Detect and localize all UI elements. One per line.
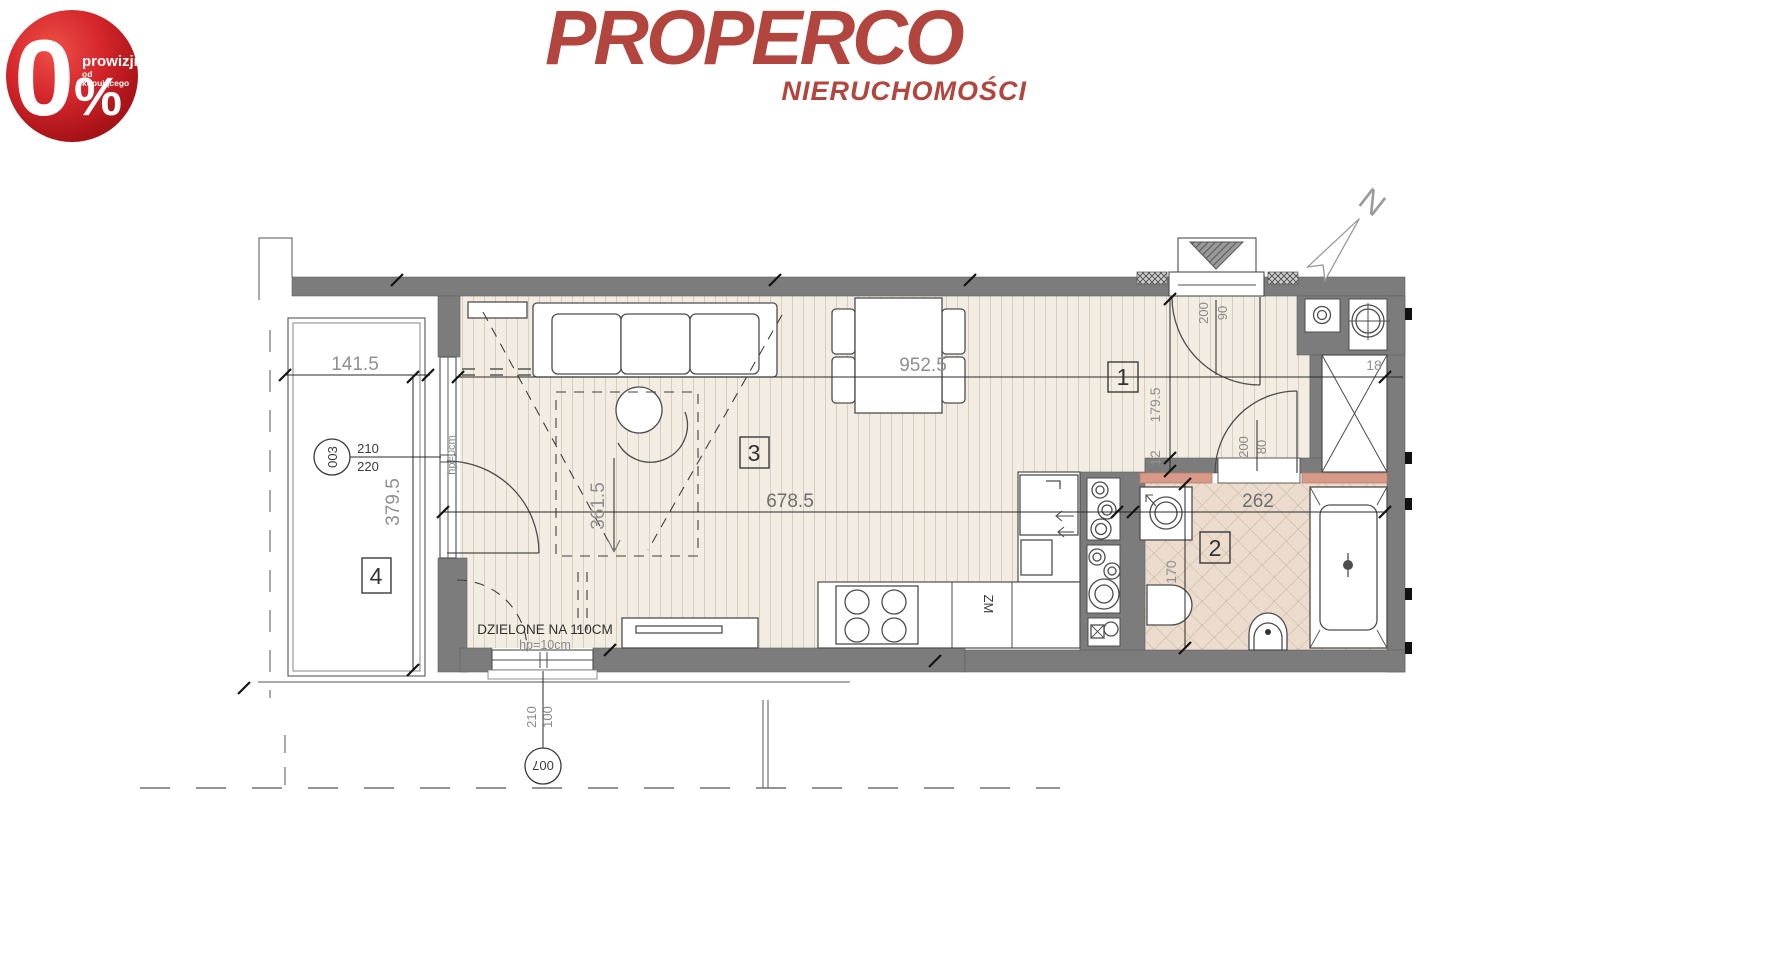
note-divided: DZIELONE NA 110CM bbox=[477, 622, 613, 637]
bath-door-height: 200 bbox=[1236, 436, 1251, 458]
armchair-seat bbox=[616, 387, 662, 433]
dim-179: 179.5 bbox=[1147, 387, 1163, 422]
dim-952: 952.5 bbox=[899, 355, 947, 376]
window-height-label: 210 bbox=[524, 706, 539, 728]
toilet-flush-dot bbox=[1265, 629, 1271, 635]
wall-left-upper bbox=[438, 296, 460, 357]
bathtub bbox=[1310, 487, 1387, 648]
dim-361: 361.5 bbox=[588, 482, 609, 530]
party-wall-hatch-left bbox=[1137, 272, 1167, 284]
niche-box-1 bbox=[1305, 299, 1340, 332]
dim-12: 12 bbox=[1147, 450, 1163, 466]
entry-door-height: 200 bbox=[1196, 302, 1211, 324]
wall-bottom-a bbox=[460, 648, 492, 672]
ref-003-label: 003 bbox=[325, 446, 340, 468]
room1-number: 1 bbox=[1117, 364, 1130, 390]
section-marks bbox=[1405, 308, 1412, 654]
sofa-cushion-3 bbox=[690, 314, 759, 374]
dishwasher-label: ZM bbox=[981, 595, 996, 614]
entrance-door-frame bbox=[1169, 272, 1264, 296]
bath-door-opening bbox=[1218, 458, 1300, 483]
oven bbox=[1021, 540, 1052, 575]
shaft-fittings bbox=[1087, 478, 1120, 646]
floor-plan-svg: ZM bbox=[0, 0, 1776, 970]
shelf bbox=[468, 302, 527, 318]
threshold-right bbox=[1302, 473, 1387, 483]
room2-number: 2 bbox=[1209, 535, 1222, 561]
dim-18: 18 bbox=[1366, 357, 1382, 373]
dim-170: 170 bbox=[1163, 560, 1179, 584]
chair-2 bbox=[832, 357, 855, 403]
wall-bottom-right bbox=[965, 650, 1405, 672]
entry-door-width: 90 bbox=[1215, 306, 1230, 320]
threshold-left bbox=[1140, 473, 1212, 483]
note-hp10: hp=10cm bbox=[519, 638, 571, 652]
kitchen-counter bbox=[818, 582, 1080, 648]
boundary-top-left bbox=[259, 238, 292, 300]
dim-141: 141.5 bbox=[331, 354, 379, 375]
sofa-cushion-2 bbox=[621, 314, 690, 374]
window-width-label: 100 bbox=[540, 706, 555, 728]
ref-007-label: 007 bbox=[532, 758, 554, 773]
room3-number: 3 bbox=[748, 440, 761, 466]
washing-machine bbox=[1140, 487, 1192, 540]
dim-379: 379.5 bbox=[383, 478, 404, 526]
north-arrow: N bbox=[1307, 181, 1392, 281]
party-wall-hatch-right bbox=[1268, 272, 1298, 284]
hall-floor-strip bbox=[1080, 458, 1145, 472]
sofa-cushion-1 bbox=[552, 314, 621, 374]
wall-wardrobe-strip bbox=[1310, 355, 1322, 458]
note-hp0: hp=0cm bbox=[446, 435, 458, 474]
sofa bbox=[533, 303, 777, 377]
door003-height: 220 bbox=[357, 459, 379, 474]
door003-width: 210 bbox=[357, 441, 379, 456]
dim-262: 262 bbox=[1242, 491, 1274, 512]
wall-top-left bbox=[292, 277, 1178, 296]
floor-plan-page: 0 % prowizji od kupującego PROPERCO NIER… bbox=[0, 0, 1776, 970]
north-arrow-icon bbox=[1308, 212, 1368, 281]
tv-stand bbox=[622, 618, 758, 648]
bath-door-width: 80 bbox=[1254, 440, 1269, 454]
chair-1 bbox=[832, 309, 855, 354]
north-label: N bbox=[1352, 181, 1392, 224]
chair-3 bbox=[942, 309, 965, 354]
wall-bottom-b bbox=[593, 648, 965, 672]
room4-number: 4 bbox=[370, 563, 383, 589]
dim-678: 678.5 bbox=[766, 491, 814, 512]
toilet bbox=[1249, 613, 1287, 650]
